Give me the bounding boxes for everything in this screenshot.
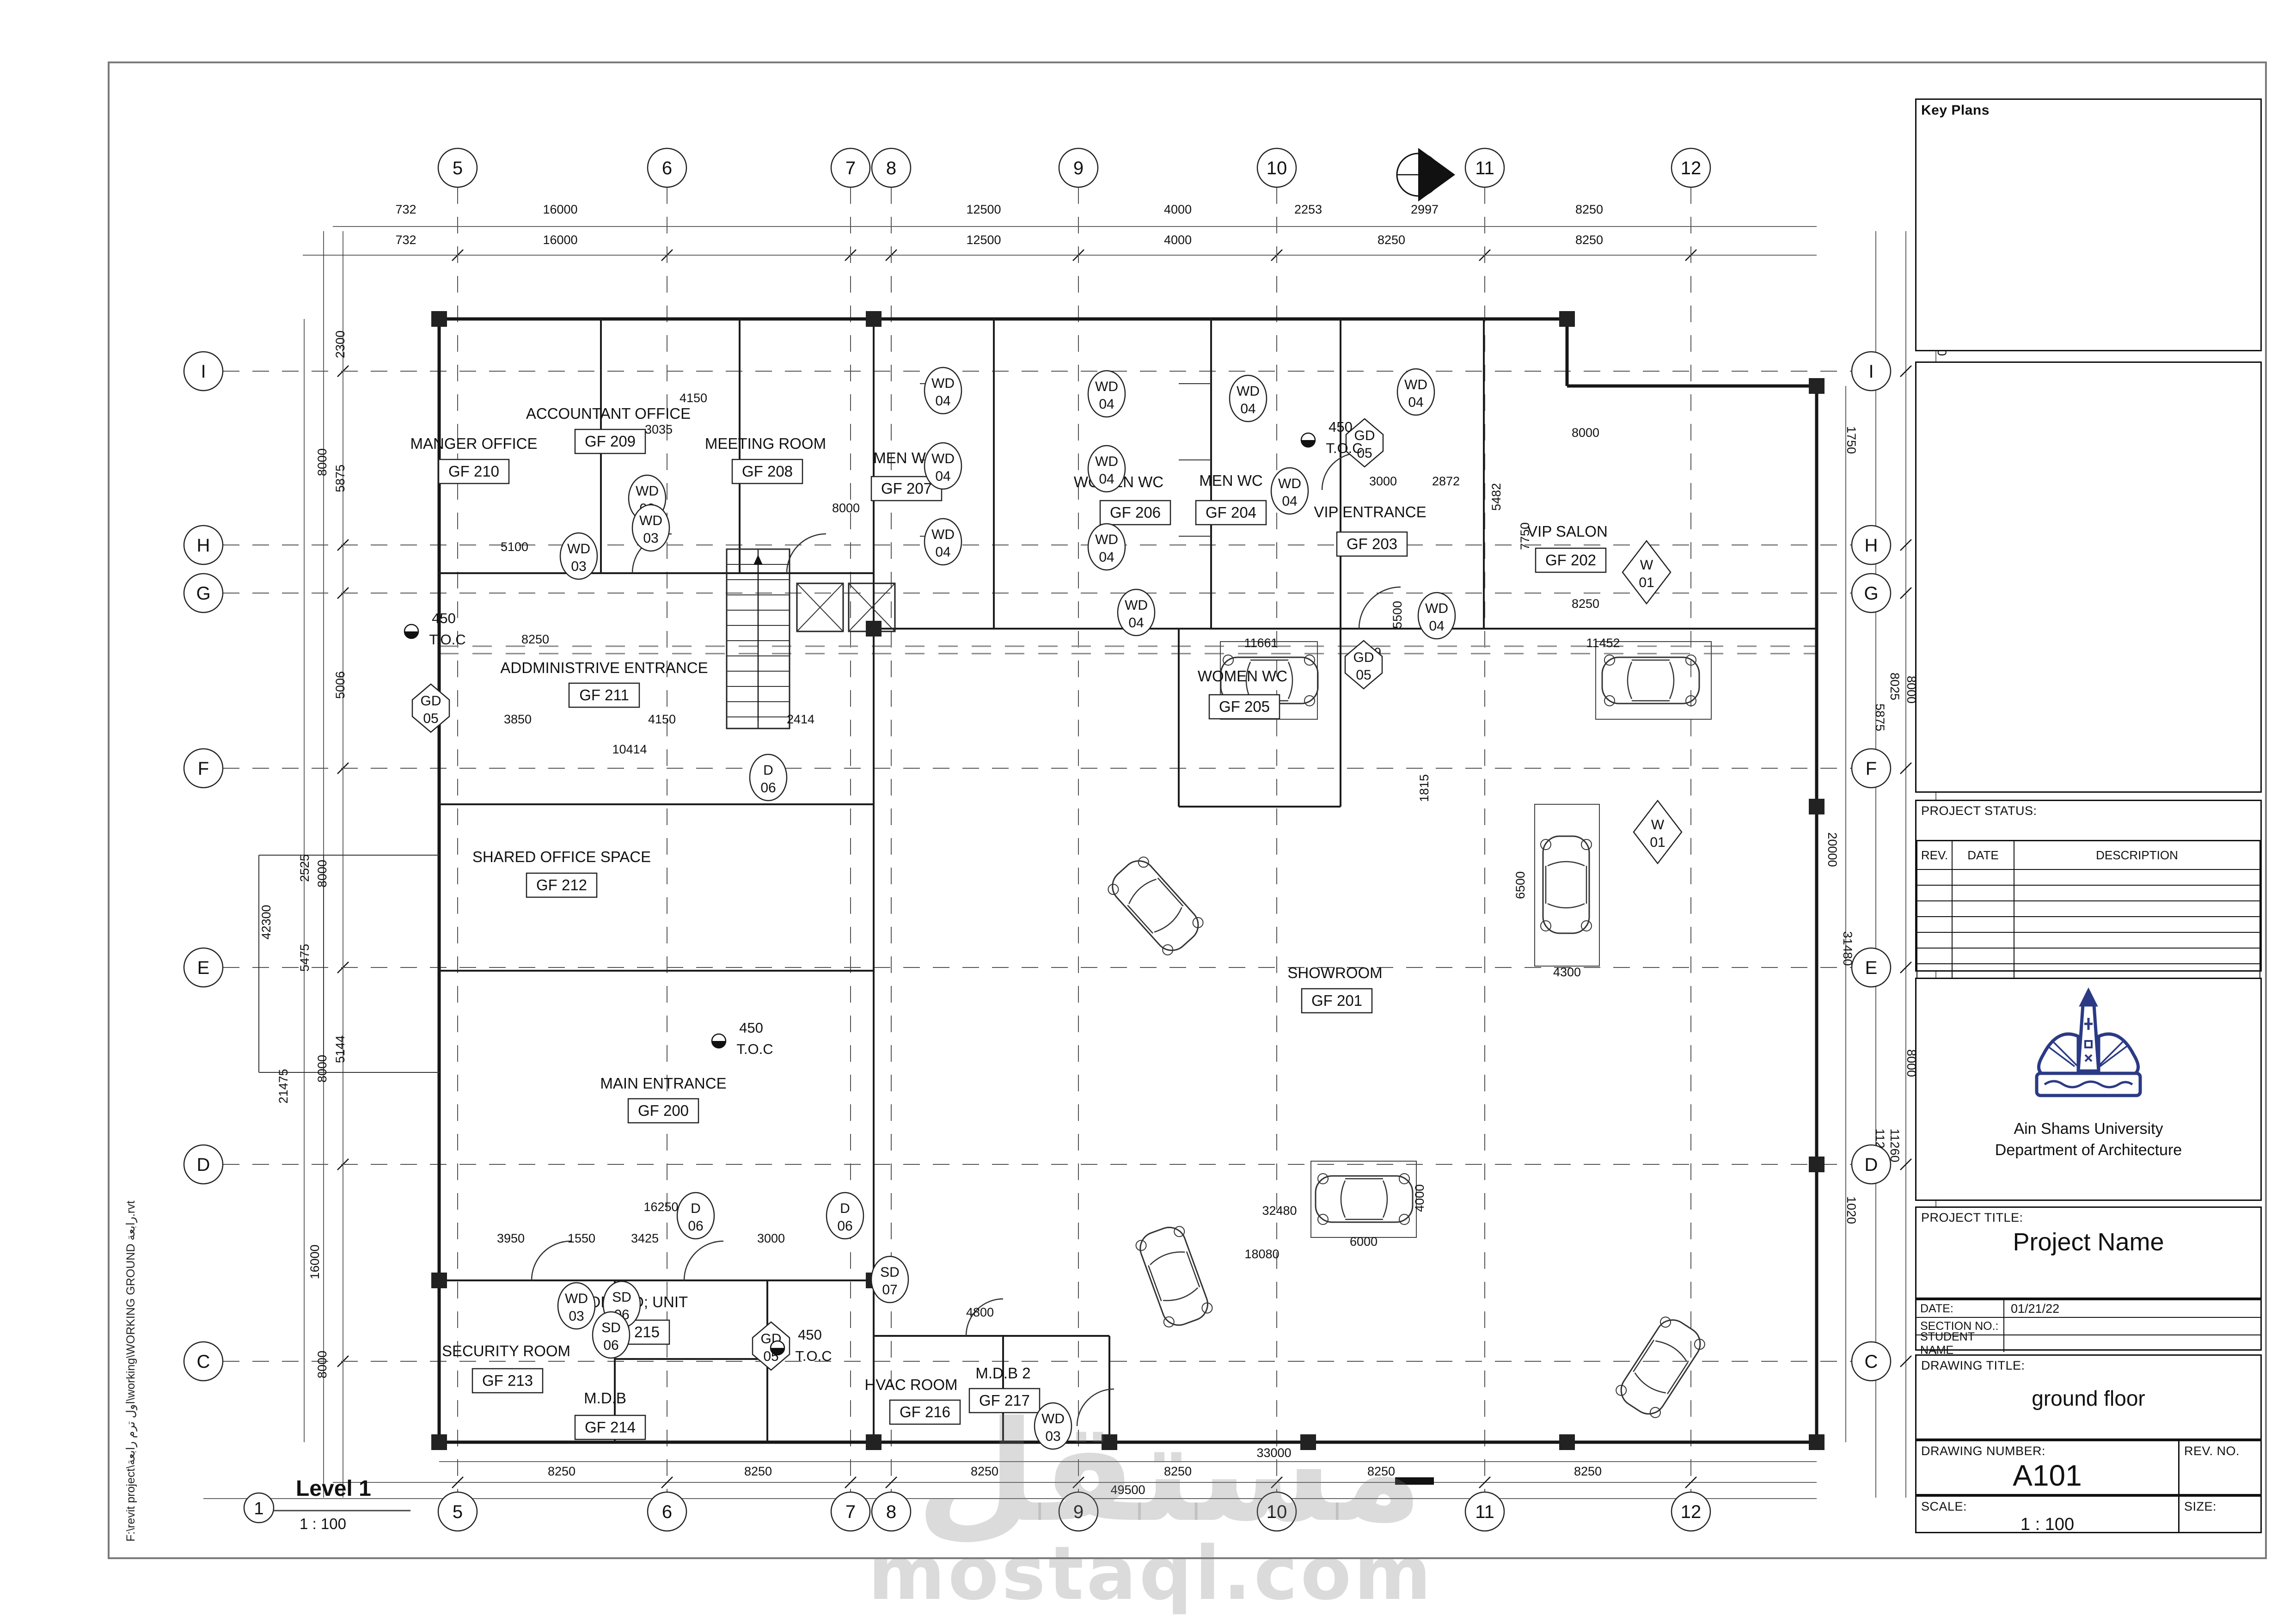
- structural-column: [431, 311, 447, 327]
- toc-label: T.O.C: [1326, 440, 1362, 456]
- grid-bubble-label: 11: [1475, 1502, 1494, 1522]
- tag-code: WD: [931, 376, 955, 391]
- room-name-label: MANGER OFFICE: [410, 435, 537, 452]
- dimension-label: 5006: [333, 671, 347, 699]
- grid-bubble-label: F: [1866, 759, 1877, 779]
- dimension-label: 2300: [333, 331, 347, 358]
- grid-bubble-label: F: [198, 759, 209, 779]
- dimension-label: 8000: [315, 448, 329, 476]
- toc-label: T.O.C: [795, 1348, 832, 1364]
- scale-box: SCALE: 1 : 100 SIZE:: [1915, 1495, 2262, 1533]
- keyplans-label: Key Plans: [1916, 100, 2260, 118]
- dimension-label: 732: [395, 233, 416, 247]
- dimension-label: 16250: [643, 1200, 678, 1214]
- drawing-number-box: DRAWING NUMBER: A101 REV. NO.: [1915, 1440, 2262, 1495]
- student-name-label: STUDENT NAME: [1916, 1335, 2004, 1352]
- tag-number: 07: [882, 1282, 897, 1298]
- tag-number: 03: [569, 1309, 584, 1324]
- room-number-badge: GF 213: [482, 1372, 533, 1389]
- watermark-domain: mostaql.com: [868, 1530, 1434, 1616]
- grid-bubble-label: I: [201, 361, 206, 382]
- tag-code: SD: [880, 1265, 900, 1280]
- dimension-label: 8250: [1575, 202, 1603, 216]
- grid-bubble-label: 5: [453, 158, 463, 178]
- dimension-label: 8250: [548, 1464, 576, 1478]
- room-name-label: M.D.B: [584, 1389, 626, 1407]
- tag-number: 03: [643, 531, 658, 546]
- room-number-badge: GF 210: [448, 463, 499, 480]
- room-name-label: M.D.B 2: [975, 1365, 1030, 1382]
- size-label: SIZE:: [2180, 1497, 2260, 1514]
- spot-elevation-icon: [1301, 440, 1315, 447]
- tag-number: 01: [1650, 835, 1665, 850]
- car-top-view: [1602, 655, 1699, 706]
- grid-bubble-label: 11: [1475, 158, 1494, 178]
- dimension-label: 5100: [501, 540, 528, 554]
- project-status-box: PROJECT STATUS: REV. DATE DESCRIPTION: [1915, 800, 2262, 972]
- stair-arrow-head: [753, 555, 763, 565]
- room-name-label: MEETING ROOM: [705, 435, 826, 452]
- dimension-label: 18080: [1244, 1247, 1279, 1261]
- room-number-badge: GF 206: [1110, 504, 1161, 521]
- tag-number: 03: [571, 559, 586, 574]
- dimension-label: 4300: [1553, 965, 1581, 979]
- dimension-label: 4800: [966, 1305, 994, 1319]
- grid-bubble-label: C: [1865, 1352, 1878, 1372]
- room-name-label: VIP SALON: [1527, 523, 1608, 540]
- project-title-box: PROJECT TITLE: Project Name: [1915, 1206, 2262, 1299]
- dimension-label: 6000: [1350, 1235, 1378, 1249]
- university-logo: [2019, 985, 2158, 1110]
- dimension-label: 5144: [333, 1035, 347, 1063]
- room-number-badge: GF 212: [536, 876, 587, 894]
- grid-bubble-label: 9: [1073, 158, 1084, 178]
- dimension-label: 3950: [497, 1231, 525, 1245]
- grid-bubble-label: E: [1865, 958, 1878, 978]
- department-name: Department of Architecture: [1916, 1139, 2260, 1161]
- tag-code: SD: [601, 1320, 621, 1335]
- room-number-badge: GF 200: [638, 1102, 689, 1119]
- room-name-label: ADDMINISTRIVE ENTRANCE: [500, 659, 708, 676]
- tag-code: GD: [421, 693, 441, 709]
- keyplans-box: Key Plans: [1915, 98, 2262, 351]
- tag-code: D: [763, 763, 773, 778]
- revision-row: [1917, 964, 2260, 979]
- tag-number: 04: [1429, 618, 1444, 634]
- tag-number: 04: [1099, 397, 1114, 412]
- structural-column: [866, 1434, 882, 1450]
- toc-label: T.O.C: [429, 631, 465, 648]
- dimension-label: 8250: [1575, 233, 1603, 247]
- dimension-label: 8000: [315, 1351, 329, 1378]
- grid-bubble-label: 6: [662, 1502, 672, 1522]
- dimension-label: 1750: [1844, 426, 1858, 454]
- north-arrow-icon: [1418, 148, 1455, 202]
- grid-bubble-label: 6: [662, 158, 672, 178]
- dimension-label: 8250: [1572, 597, 1599, 611]
- dimension-label: 3425: [631, 1231, 659, 1245]
- drawing-title-value: ground floor: [1916, 1386, 2260, 1411]
- dimension-label: 4150: [680, 391, 707, 405]
- revision-row: [1917, 869, 2260, 885]
- grid-bubble-label: H: [197, 535, 210, 556]
- university-box: Ain Shams University Department of Archi…: [1915, 978, 2262, 1201]
- dimension-label: 1815: [1417, 774, 1431, 802]
- dimension-label: 6500: [1513, 871, 1527, 899]
- grid-bubble-label: D: [1865, 1155, 1878, 1175]
- tag-code: WD: [1095, 379, 1118, 394]
- tag-code: WD: [931, 451, 955, 466]
- structural-column: [1809, 378, 1825, 394]
- room-name-label: MAIN ENTRANCE: [600, 1075, 726, 1092]
- grid-bubble-label: 8: [886, 158, 896, 178]
- structural-column: [1809, 1157, 1825, 1172]
- dimension-label: 32480: [1262, 1204, 1297, 1218]
- room-number-badge: GF 211: [579, 686, 629, 704]
- grid-bubble-label: E: [197, 958, 210, 978]
- tag-code: WD: [1095, 532, 1118, 547]
- dimension-label: 12500: [966, 202, 1001, 216]
- tag-number: 04: [1408, 395, 1423, 410]
- tag-number: 04: [1240, 401, 1255, 416]
- structural-column: [1559, 1434, 1575, 1450]
- toc-label: T.O.C: [736, 1041, 773, 1057]
- dimension-label: 3850: [504, 712, 532, 726]
- structural-column: [1559, 311, 1575, 327]
- tag-number: 06: [603, 1338, 618, 1353]
- grid-bubble-label: 7: [845, 158, 856, 178]
- tag-code: D: [840, 1201, 850, 1216]
- dimension-label: 8025: [1888, 673, 1902, 700]
- dimension-label: 4000: [1164, 233, 1192, 247]
- dimension-label: 21475: [276, 1069, 290, 1103]
- grid-bubble-label: D: [197, 1155, 210, 1175]
- dimension-label: 1550: [568, 1231, 595, 1245]
- rev-col-header: REV.: [1917, 841, 1952, 869]
- tag-number: 06: [837, 1218, 852, 1234]
- tag-code: WD: [639, 513, 662, 528]
- tag-number: 04: [1099, 471, 1114, 487]
- grid-bubble-label: 8: [886, 1502, 896, 1522]
- tag-code: WD: [931, 527, 955, 542]
- room-name-label: SHOWROOM: [1287, 964, 1382, 981]
- tag-code: WD: [636, 484, 659, 499]
- revision-row: [1917, 901, 2260, 917]
- toc-value: 450: [432, 610, 456, 626]
- dimension-label: 8250: [744, 1464, 772, 1478]
- dimension-label: 5875: [1873, 704, 1887, 731]
- project-info-box: DATE: 01/21/22 SECTION NO.: STUDENT NAME: [1915, 1299, 2262, 1351]
- dimension-label: 16000: [543, 202, 577, 216]
- file-path-note: F:\revit project\اول ترم رابعة\working\W…: [124, 1033, 138, 1542]
- structural-column: [1809, 1434, 1825, 1450]
- dimension-label: 3035: [645, 422, 673, 436]
- revision-row: [1917, 917, 2260, 932]
- university-name: Ain Shams University: [1916, 1118, 2260, 1139]
- tag-code: WD: [1125, 598, 1148, 613]
- rev-no-label: REV. NO.: [2180, 1441, 2260, 1458]
- tag-number: 04: [1282, 494, 1297, 509]
- tag-code: WD: [567, 541, 590, 557]
- dimension-label: 8000: [315, 860, 329, 888]
- tag-number: 04: [935, 393, 950, 409]
- drawing-title-label: DRAWING TITLE:: [1916, 1356, 2260, 1373]
- dimension-label: 5482: [1489, 483, 1503, 511]
- car-top-view: [1133, 1222, 1214, 1331]
- date-label: DATE:: [1916, 1300, 2004, 1317]
- grid-bubble-label: G: [196, 583, 210, 604]
- dimension-label: 2525: [298, 854, 312, 882]
- tag-number: 04: [1128, 615, 1144, 630]
- dimension-label: 4150: [648, 712, 676, 726]
- tag-number: 05: [1356, 667, 1371, 683]
- tag-code: WD: [1425, 601, 1448, 616]
- car-top-view: [1613, 1312, 1708, 1421]
- tag-code: W: [1640, 557, 1653, 573]
- grid-bubble-label: 12: [1681, 1502, 1702, 1522]
- grid-bubble-label: 10: [1267, 158, 1287, 178]
- dimension-label: 11452: [1586, 636, 1620, 650]
- car-top-view: [1104, 852, 1206, 959]
- drawing-title-box: DRAWING TITLE: ground floor: [1915, 1354, 2262, 1440]
- desc-col-header: DESCRIPTION: [2014, 841, 2260, 869]
- room-number-badge: GF 202: [1545, 551, 1596, 569]
- tag-code: WD: [1095, 454, 1118, 469]
- dimension-label: 732: [395, 202, 416, 216]
- dimension-label: 12500: [966, 233, 1001, 247]
- spot-elevation-icon: [404, 631, 418, 638]
- room-name-label: ACCOUNTANT OFFICE: [526, 405, 691, 422]
- dimension-label: 8250: [1378, 233, 1405, 247]
- tag-code: WD: [1404, 377, 1427, 392]
- toc-value: 450: [798, 1327, 822, 1343]
- dimension-label: 8000: [832, 501, 860, 515]
- room-number-badge: GF 205: [1219, 698, 1270, 715]
- dimension-label: 42300: [259, 905, 273, 939]
- dimension-label: 2414: [787, 712, 814, 726]
- tag-code: D: [691, 1201, 701, 1216]
- room-number-badge: GF 203: [1347, 535, 1397, 552]
- dimension-label: 16000: [543, 233, 577, 247]
- dimension-label: 16000: [308, 1244, 322, 1279]
- revision-row: [1917, 885, 2260, 901]
- room-name-label: WOMEN WC: [1198, 667, 1287, 685]
- structural-column: [866, 311, 882, 327]
- dimension-label: 10414: [612, 742, 647, 756]
- room-number-badge: GF 214: [585, 1419, 636, 1436]
- dimension-label: 4000: [1164, 202, 1192, 216]
- dimension-label: 11260: [1888, 1128, 1902, 1162]
- dimension-label: 3000: [757, 1231, 785, 1245]
- toc-value: 450: [739, 1020, 763, 1036]
- room-number-badge: GF 209: [585, 433, 636, 450]
- structural-column: [431, 1434, 447, 1450]
- grid-bubble-label: 5: [453, 1502, 463, 1522]
- tag-number: 05: [423, 711, 438, 726]
- tag-number: 06: [760, 780, 776, 796]
- grid-bubble-label: C: [197, 1352, 210, 1372]
- revision-row: [1917, 932, 2260, 948]
- view-title: Level 1: [296, 1476, 371, 1501]
- dimension-label: 8000: [315, 1055, 329, 1083]
- door-swing-arc: [787, 534, 826, 573]
- dimension-label: 8250: [521, 632, 549, 646]
- tag-number: 04: [935, 469, 950, 484]
- room-name-label: HVAC ROOM: [864, 1376, 957, 1393]
- grid-bubble-label: G: [1864, 583, 1878, 604]
- grid-bubble-label: H: [1865, 535, 1878, 556]
- revision-table: REV. DATE DESCRIPTION: [1916, 841, 2260, 980]
- dimension-label: 7750: [1518, 522, 1532, 550]
- room-number-badge: GF 201: [1311, 992, 1362, 1009]
- drawing-number-label: DRAWING NUMBER:: [1916, 1441, 2178, 1458]
- room-name-label: MEN WC: [1199, 472, 1262, 489]
- dimension-label: 2253: [1294, 202, 1322, 216]
- tag-code: SD: [612, 1290, 631, 1305]
- dimension-label: 5475: [298, 944, 312, 972]
- watermark-arabic: مستقل: [916, 1391, 1423, 1553]
- project-status-label: PROJECT STATUS:: [1916, 801, 2260, 841]
- door-swing-arc: [684, 1241, 723, 1280]
- project-title-label: PROJECT TITLE:: [1916, 1208, 2260, 1225]
- tag-code: W: [1651, 817, 1665, 832]
- grid-bubble-label: 12: [1681, 158, 1702, 178]
- tag-code: WD: [1237, 384, 1260, 399]
- room-number-badge: GF 204: [1206, 504, 1256, 521]
- door-swing-arc: [532, 1241, 571, 1280]
- dimension-label: 5875: [333, 465, 347, 492]
- date-value: 01/21/22: [2004, 1302, 2059, 1316]
- view-reference-number: 1: [254, 1499, 263, 1518]
- keyplan-area-box: [1915, 361, 2262, 793]
- dimension-label: 2997: [1411, 202, 1439, 216]
- dimension-label: 8000: [1572, 426, 1599, 440]
- revision-row: [1917, 948, 2260, 964]
- car-top-view: [1316, 1174, 1413, 1224]
- tag-code: WD: [565, 1291, 588, 1306]
- dimension-label: 1020: [1844, 1196, 1858, 1224]
- tag-number: 04: [1099, 550, 1114, 565]
- date-col-header: DATE: [1952, 841, 2014, 869]
- scale-label: SCALE:: [1916, 1497, 2178, 1514]
- grid-bubble-label: 7: [845, 1502, 856, 1522]
- dimension-label: 11661: [1244, 636, 1278, 650]
- project-title-value: Project Name: [1916, 1228, 2260, 1256]
- tag-code: WD: [1278, 476, 1301, 491]
- drawing-number-value: A101: [1916, 1458, 2178, 1493]
- tag-number: 01: [1639, 575, 1654, 590]
- view-scale-label: 1 : 100: [300, 1515, 346, 1532]
- dimension-label: 5500: [1390, 601, 1404, 629]
- dimension-label: 20000: [1825, 832, 1839, 867]
- drawing-sheet: MANGER OFFICEGF 210ACCOUNTANT OFFICEGF 2…: [0, 0, 2296, 1622]
- grid-bubble-label: I: [1868, 361, 1874, 382]
- dimension-label: 4000: [1413, 1184, 1427, 1212]
- dimension-label: 8250: [1574, 1464, 1602, 1478]
- structural-column: [431, 1273, 447, 1288]
- room-number-badge: GF 208: [742, 463, 793, 480]
- structural-column: [1809, 799, 1825, 814]
- dimension-label: 3000: [1369, 474, 1397, 488]
- tag-code: GD: [1353, 650, 1374, 665]
- spot-elevation-icon: [712, 1041, 726, 1048]
- tag-number: 04: [935, 545, 950, 560]
- room-number-badge: GF 207: [881, 480, 932, 497]
- room-name-label: SHARED OFFICE SPACE: [472, 848, 651, 865]
- structural-column: [866, 621, 882, 637]
- dimension-label: 2872: [1432, 474, 1460, 488]
- toc-value: 450: [1329, 419, 1353, 435]
- car-platform: [1311, 1161, 1416, 1237]
- room-name-label: VIP ENTRANCE: [1314, 503, 1426, 520]
- scale-value: 1 : 100: [1916, 1515, 2178, 1535]
- tag-number: 06: [688, 1218, 703, 1234]
- car-top-view: [1541, 836, 1592, 933]
- room-name-label: SECURITY ROOM: [442, 1342, 570, 1359]
